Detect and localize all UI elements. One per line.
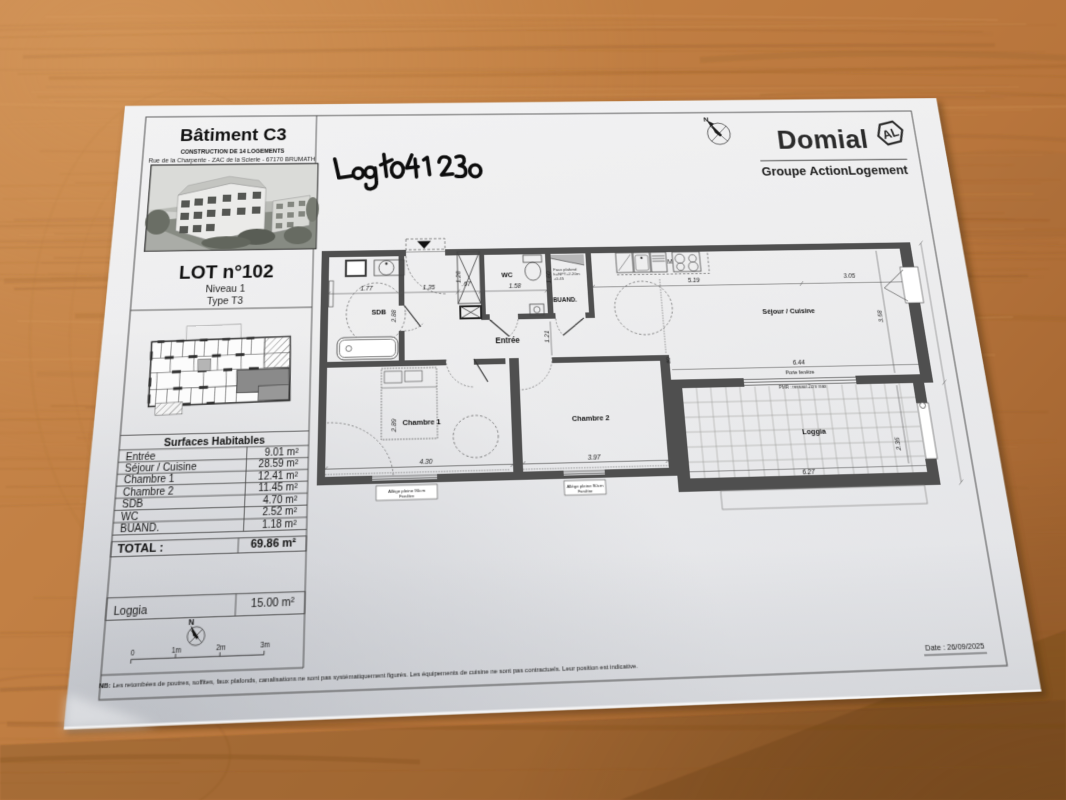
svg-text:M: M xyxy=(667,260,673,266)
svg-text:Niveau 1: Niveau 1 xyxy=(205,283,245,294)
svg-text:Loggia: Loggia xyxy=(802,428,827,437)
svg-text:BUAND.: BUAND. xyxy=(553,298,578,305)
svg-text:80: 80 xyxy=(666,357,673,364)
svg-text:26/09/2025: 26/09/2025 xyxy=(946,642,985,652)
svg-text:2m: 2m xyxy=(216,645,226,653)
svg-text:1.35: 1.35 xyxy=(423,285,436,292)
svg-text:1.77: 1.77 xyxy=(360,286,373,293)
svg-text:69.86 m²: 69.86 m² xyxy=(250,537,296,552)
svg-text:BUAND.: BUAND. xyxy=(120,522,160,536)
svg-text:N: N xyxy=(703,117,709,124)
svg-text:Date :: Date : xyxy=(925,644,947,654)
svg-text:2.52 m²: 2.52 m² xyxy=(262,505,297,518)
svg-text:1m: 1m xyxy=(171,647,181,655)
svg-text:Séjour / Cuisine: Séjour / Cuisine xyxy=(762,307,816,315)
svg-text:1.18 m²: 1.18 m² xyxy=(262,517,297,530)
svg-text:TOTAL :: TOTAL : xyxy=(117,542,164,557)
svg-text:Loggia: Loggia xyxy=(113,603,149,617)
svg-text:Porte fenêtre: Porte fenêtre xyxy=(785,369,815,375)
svg-text:3m: 3m xyxy=(260,642,270,650)
svg-text:SDB: SDB xyxy=(122,498,144,511)
svg-text:Chambre 2: Chambre 2 xyxy=(122,485,174,499)
svg-text:Fenêtre: Fenêtre xyxy=(399,494,414,499)
svg-text:Allège pleine 90cm: Allège pleine 90cm xyxy=(567,483,604,489)
svg-text:15.00 m²: 15.00 m² xyxy=(251,596,295,610)
svg-text:LOT n°102: LOT n°102 xyxy=(178,260,274,283)
svg-text:Chambre 2: Chambre 2 xyxy=(572,415,611,424)
svg-text:1.58: 1.58 xyxy=(509,284,522,291)
svg-text:Allège pleine 90cm: Allège pleine 90cm xyxy=(388,488,425,494)
svg-text:WC: WC xyxy=(121,510,139,523)
svg-text:Domial: Domial xyxy=(775,126,870,155)
svg-text:1.28: 1.28 xyxy=(456,270,463,283)
svg-text:1.60: 1.60 xyxy=(546,271,553,284)
svg-text:Chambre 1: Chambre 1 xyxy=(402,419,441,428)
svg-text:.67: .67 xyxy=(462,282,472,289)
svg-text:9.01 m²: 9.01 m² xyxy=(264,445,298,458)
svg-text:5.19: 5.19 xyxy=(687,278,700,284)
svg-text:N: N xyxy=(188,618,195,627)
svg-text:6.44: 6.44 xyxy=(792,360,806,367)
svg-text:Entrée: Entrée xyxy=(495,337,520,346)
svg-text:4.30: 4.30 xyxy=(419,460,433,467)
svg-text:Groupe ActionLogement: Groupe ActionLogement xyxy=(761,163,910,179)
svg-text:0: 0 xyxy=(130,651,134,659)
svg-text:Surfaces Habitables: Surfaces Habitables xyxy=(164,434,265,448)
svg-text:Entrée: Entrée xyxy=(125,450,156,463)
svg-text:Fenêtre: Fenêtre xyxy=(578,489,593,494)
svg-text:2.88: 2.88 xyxy=(391,309,398,323)
svg-text:+0.45: +0.45 xyxy=(554,277,565,281)
svg-text:WC: WC xyxy=(501,272,513,280)
svg-text:SDB: SDB xyxy=(371,309,386,317)
svg-text:3.05: 3.05 xyxy=(843,274,857,280)
svg-text:4.70 m²: 4.70 m² xyxy=(263,493,298,506)
svg-text:Type T3: Type T3 xyxy=(206,295,243,306)
svg-text:3.97: 3.97 xyxy=(588,455,602,462)
svg-text:6.27: 6.27 xyxy=(802,469,816,476)
svg-text:2.89: 2.89 xyxy=(392,418,399,433)
svg-text:Bâtiment C3: Bâtiment C3 xyxy=(179,125,286,145)
svg-text:CONSTRUCTION DE 14 LOGEMENTS: CONSTRUCTION DE 14 LOGEMENTS xyxy=(180,149,285,156)
